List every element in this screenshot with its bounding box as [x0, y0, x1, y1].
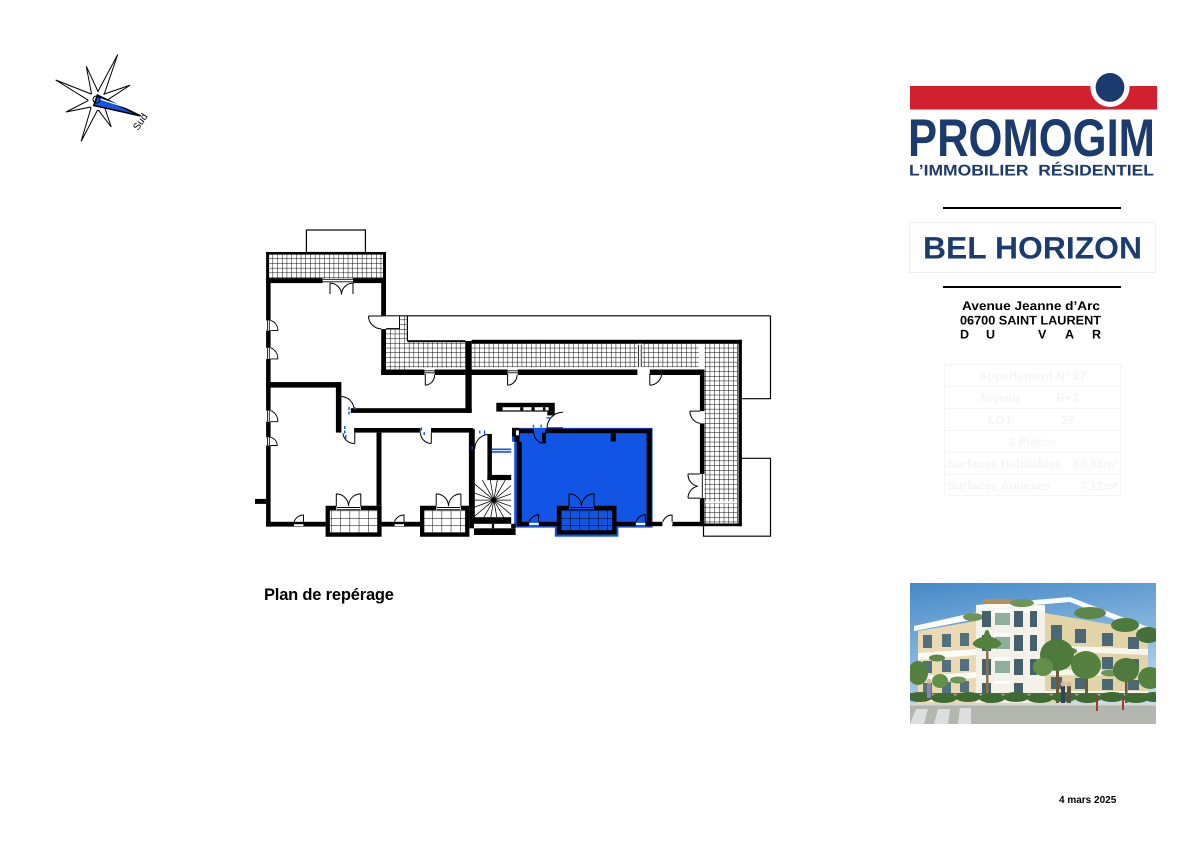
svg-text:06700 SAINT LAURENT: 06700 SAINT LAURENT — [960, 314, 1101, 328]
svg-text:D: D — [960, 328, 969, 342]
svg-text:V: V — [1038, 328, 1047, 342]
svg-text:L’IMMOBILIER RÉSIDENTIEL: L’IMMOBILIER RÉSIDENTIEL — [909, 162, 1154, 180]
svg-text:U: U — [986, 328, 995, 342]
svg-text:Avenue Jeanne d’Arc: Avenue Jeanne d’Arc — [962, 299, 1100, 313]
svg-text:R: R — [1092, 328, 1101, 342]
svg-text:PROMOGIM: PROMOGIM — [908, 109, 1155, 168]
svg-text:A: A — [1065, 328, 1074, 342]
svg-text:BEL HORIZON: BEL HORIZON — [923, 231, 1142, 266]
